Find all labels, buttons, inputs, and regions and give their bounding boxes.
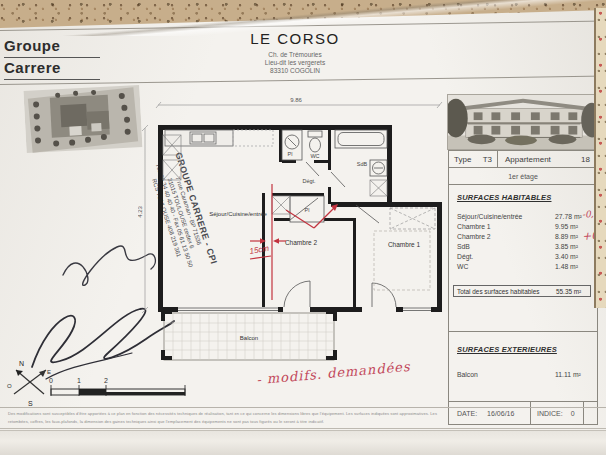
- dim-height-label: 4.23: [138, 206, 143, 218]
- surface-row-value: 8.89 m²: [555, 233, 578, 240]
- scale-tick-1: 1: [77, 377, 81, 384]
- table-right-sliver: [594, 8, 606, 308]
- project-address: Ch. de Trémouries Lieu-dit les vergerets…: [215, 51, 375, 75]
- bathtub-fixture: [335, 130, 387, 148]
- compass-s: S: [28, 400, 33, 407]
- footer-disclaimer-line2: retombées, coffres, les faux-plafonds, l…: [8, 419, 440, 425]
- paper-bottom-edge: [0, 430, 606, 455]
- floor-row: 1er étage: [449, 168, 597, 185]
- balcon-label: Balcon: [457, 371, 478, 378]
- site-plan-thumbnail: [23, 83, 142, 157]
- room-label-pl-lower: Pl: [305, 207, 310, 213]
- surface-row-value: 3.40 m²: [555, 253, 578, 260]
- type-value: T3: [483, 155, 492, 164]
- footer-disclaimer-line1: Des modifications sont susceptibles d'êt…: [8, 411, 440, 417]
- surface-row-label: Séjour/Cuisine/entrée: [457, 213, 522, 220]
- surface-row-label: Chambre 1: [457, 223, 491, 230]
- company-logo-line1: Groupe: [4, 36, 100, 58]
- room-label-degt: Dégt.: [302, 178, 316, 184]
- company-logo: Groupe Carrere: [4, 36, 100, 80]
- type-apartment-row: Type T3 Appartement 18: [449, 151, 597, 168]
- surface-row-label: Chambre 2: [457, 233, 491, 240]
- red-measure-label: 15cm: [249, 244, 270, 256]
- indice-value: 0: [571, 410, 575, 417]
- title-block: LE CORSO Ch. de Trémouries Lieu-dit les …: [215, 30, 375, 75]
- toilet-fixture: [308, 131, 322, 152]
- surface-row-value: 27.78 m²: [555, 213, 582, 220]
- scale-tick-0: 0: [49, 377, 53, 384]
- room-label-sejour: Séjour/Cuisine/entrée: [209, 211, 267, 217]
- surfaces-habitables-title: SURFACES HABITABLES: [457, 193, 552, 202]
- balcon-value: 11.11 m²: [555, 371, 581, 378]
- floor-plan: 9.86 4.23: [138, 92, 450, 380]
- total-surface-row: Total des surfaces habitables 55.35 m²: [453, 285, 591, 297]
- surface-row-value: 9.95 m²: [555, 223, 578, 230]
- date-label: DATE:: [457, 410, 477, 417]
- surface-row: Chambre 2 8.89 m²: [457, 233, 589, 243]
- apartment-number: 18: [581, 155, 590, 164]
- address-line3: 83310 COGOLIN: [215, 67, 375, 75]
- type-label: Type: [454, 155, 471, 164]
- chambre1-closet: [390, 208, 435, 229]
- surface-row-label: SdB: [457, 243, 470, 250]
- room-label-wc: WC: [310, 153, 319, 159]
- room-label-balcon: Balcon: [240, 335, 258, 341]
- address-line1: Ch. de Trémouries: [215, 51, 375, 59]
- surface-row-label: Dégt.: [457, 253, 473, 260]
- apartment-label: Appartement: [505, 155, 551, 164]
- dim-width-label: 9.86: [290, 97, 302, 103]
- surface-row-label: WC: [457, 263, 468, 270]
- total-value: 55.35 m²: [556, 288, 581, 295]
- duct-box-sdb: [370, 180, 387, 196]
- room-label-chambre2: Chambre 2: [285, 239, 318, 246]
- total-label: Total des surfaces habitables: [454, 288, 539, 295]
- indice-label: INDICE:: [537, 410, 563, 417]
- sink-fixture: [370, 160, 387, 176]
- compass-n: N: [19, 360, 24, 367]
- date-indice-row: DATE: 16/06/16 INDICE: 0: [449, 401, 597, 425]
- scale-tick-2: 2: [104, 377, 108, 384]
- footer-top-rule: [0, 407, 606, 408]
- door-swings: [284, 162, 396, 307]
- surface-row: WC 1.48 m²: [457, 263, 589, 273]
- room-label-sdb: SdB: [357, 161, 368, 167]
- surface-row-value: 1.48 m²: [555, 263, 578, 270]
- project-title: LE CORSO: [215, 30, 375, 47]
- section-divider: [449, 331, 597, 332]
- building-rendering: [447, 94, 599, 150]
- surface-row-value: 3.85 m²: [555, 243, 578, 250]
- balcon-row: Balcon 11.11 m²: [457, 371, 589, 381]
- room-label-pl-upper: Pl: [288, 151, 293, 157]
- company-logo-line2: Carrere: [4, 58, 100, 80]
- surface-row: SdB 3.85 m²: [457, 243, 589, 253]
- apartment-info-table: Type T3 Appartement 18 1er étage SURFACE…: [448, 150, 598, 425]
- chambre1-bed: [374, 231, 430, 290]
- surface-row: Chambre 1 9.95 m²: [457, 223, 589, 233]
- surface-row: Séjour/Cuisine/entrée 27.78 m²: [457, 213, 589, 223]
- date-value: 16/06/16: [487, 410, 514, 417]
- footer-bottom-rule: [0, 428, 606, 429]
- compass-o: O: [7, 383, 12, 389]
- room-label-chambre1: Chambre 1: [388, 241, 421, 248]
- surfaces-exterieures-title: SURFACES EXTERIEURES: [457, 345, 557, 354]
- photographed-floor-plan-document: { "header": { "company_line1": "Groupe",…: [0, 0, 606, 455]
- address-line2: Lieu-dit les vergerets: [215, 59, 375, 67]
- surface-row: Dégt. 3.40 m²: [457, 253, 589, 263]
